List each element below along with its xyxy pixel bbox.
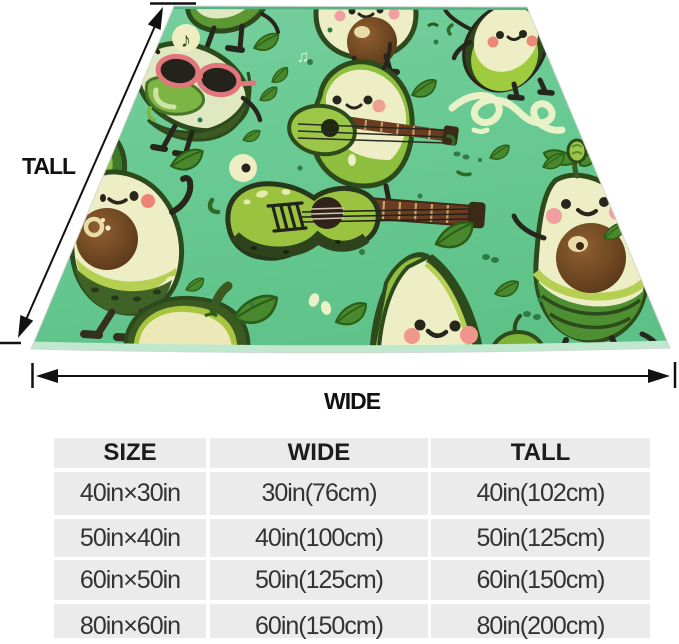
svg-text:♪: ♪ (181, 29, 192, 52)
svg-text:WIDE: WIDE (324, 388, 381, 414)
svg-text:TALL: TALL (22, 153, 76, 179)
svg-text:♪: ♪ (562, 32, 571, 52)
